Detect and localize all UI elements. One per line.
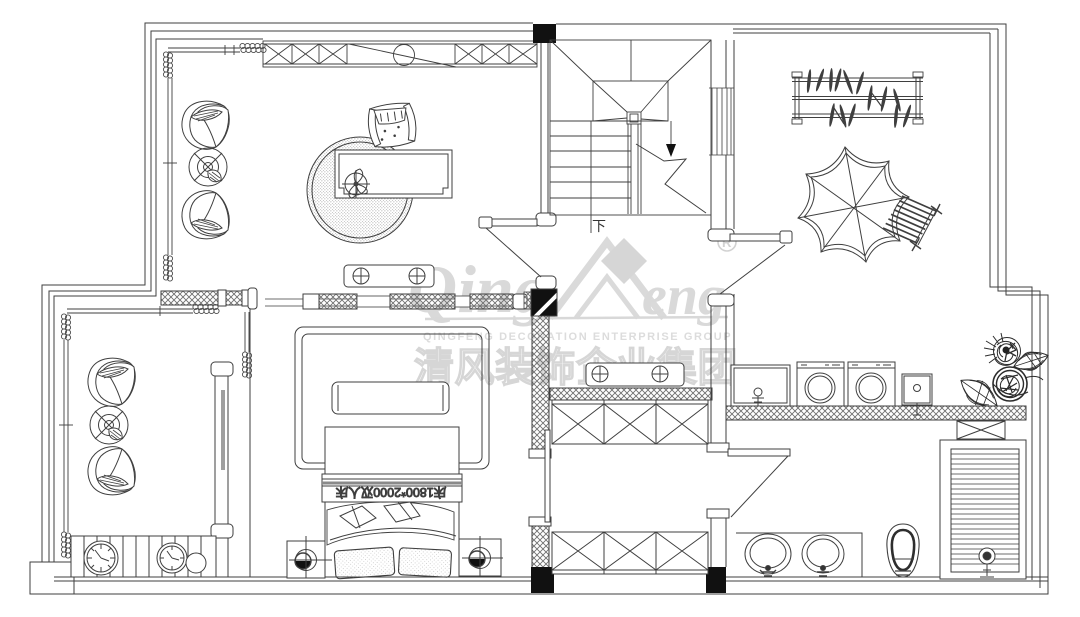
svg-text:QINGFENG DECORATION ENTERPRI: QINGFENG DECORATION ENTERPRISE GROUP: [423, 331, 732, 343]
svg-text:清风装饰企业集团: 清风装饰企业集团: [414, 345, 738, 390]
svg-text:床1800*2000双人床: 床1800*2000双人床: [335, 485, 446, 499]
svg-text:下: 下: [592, 218, 606, 234]
svg-text:Qing: Qing: [408, 251, 548, 327]
